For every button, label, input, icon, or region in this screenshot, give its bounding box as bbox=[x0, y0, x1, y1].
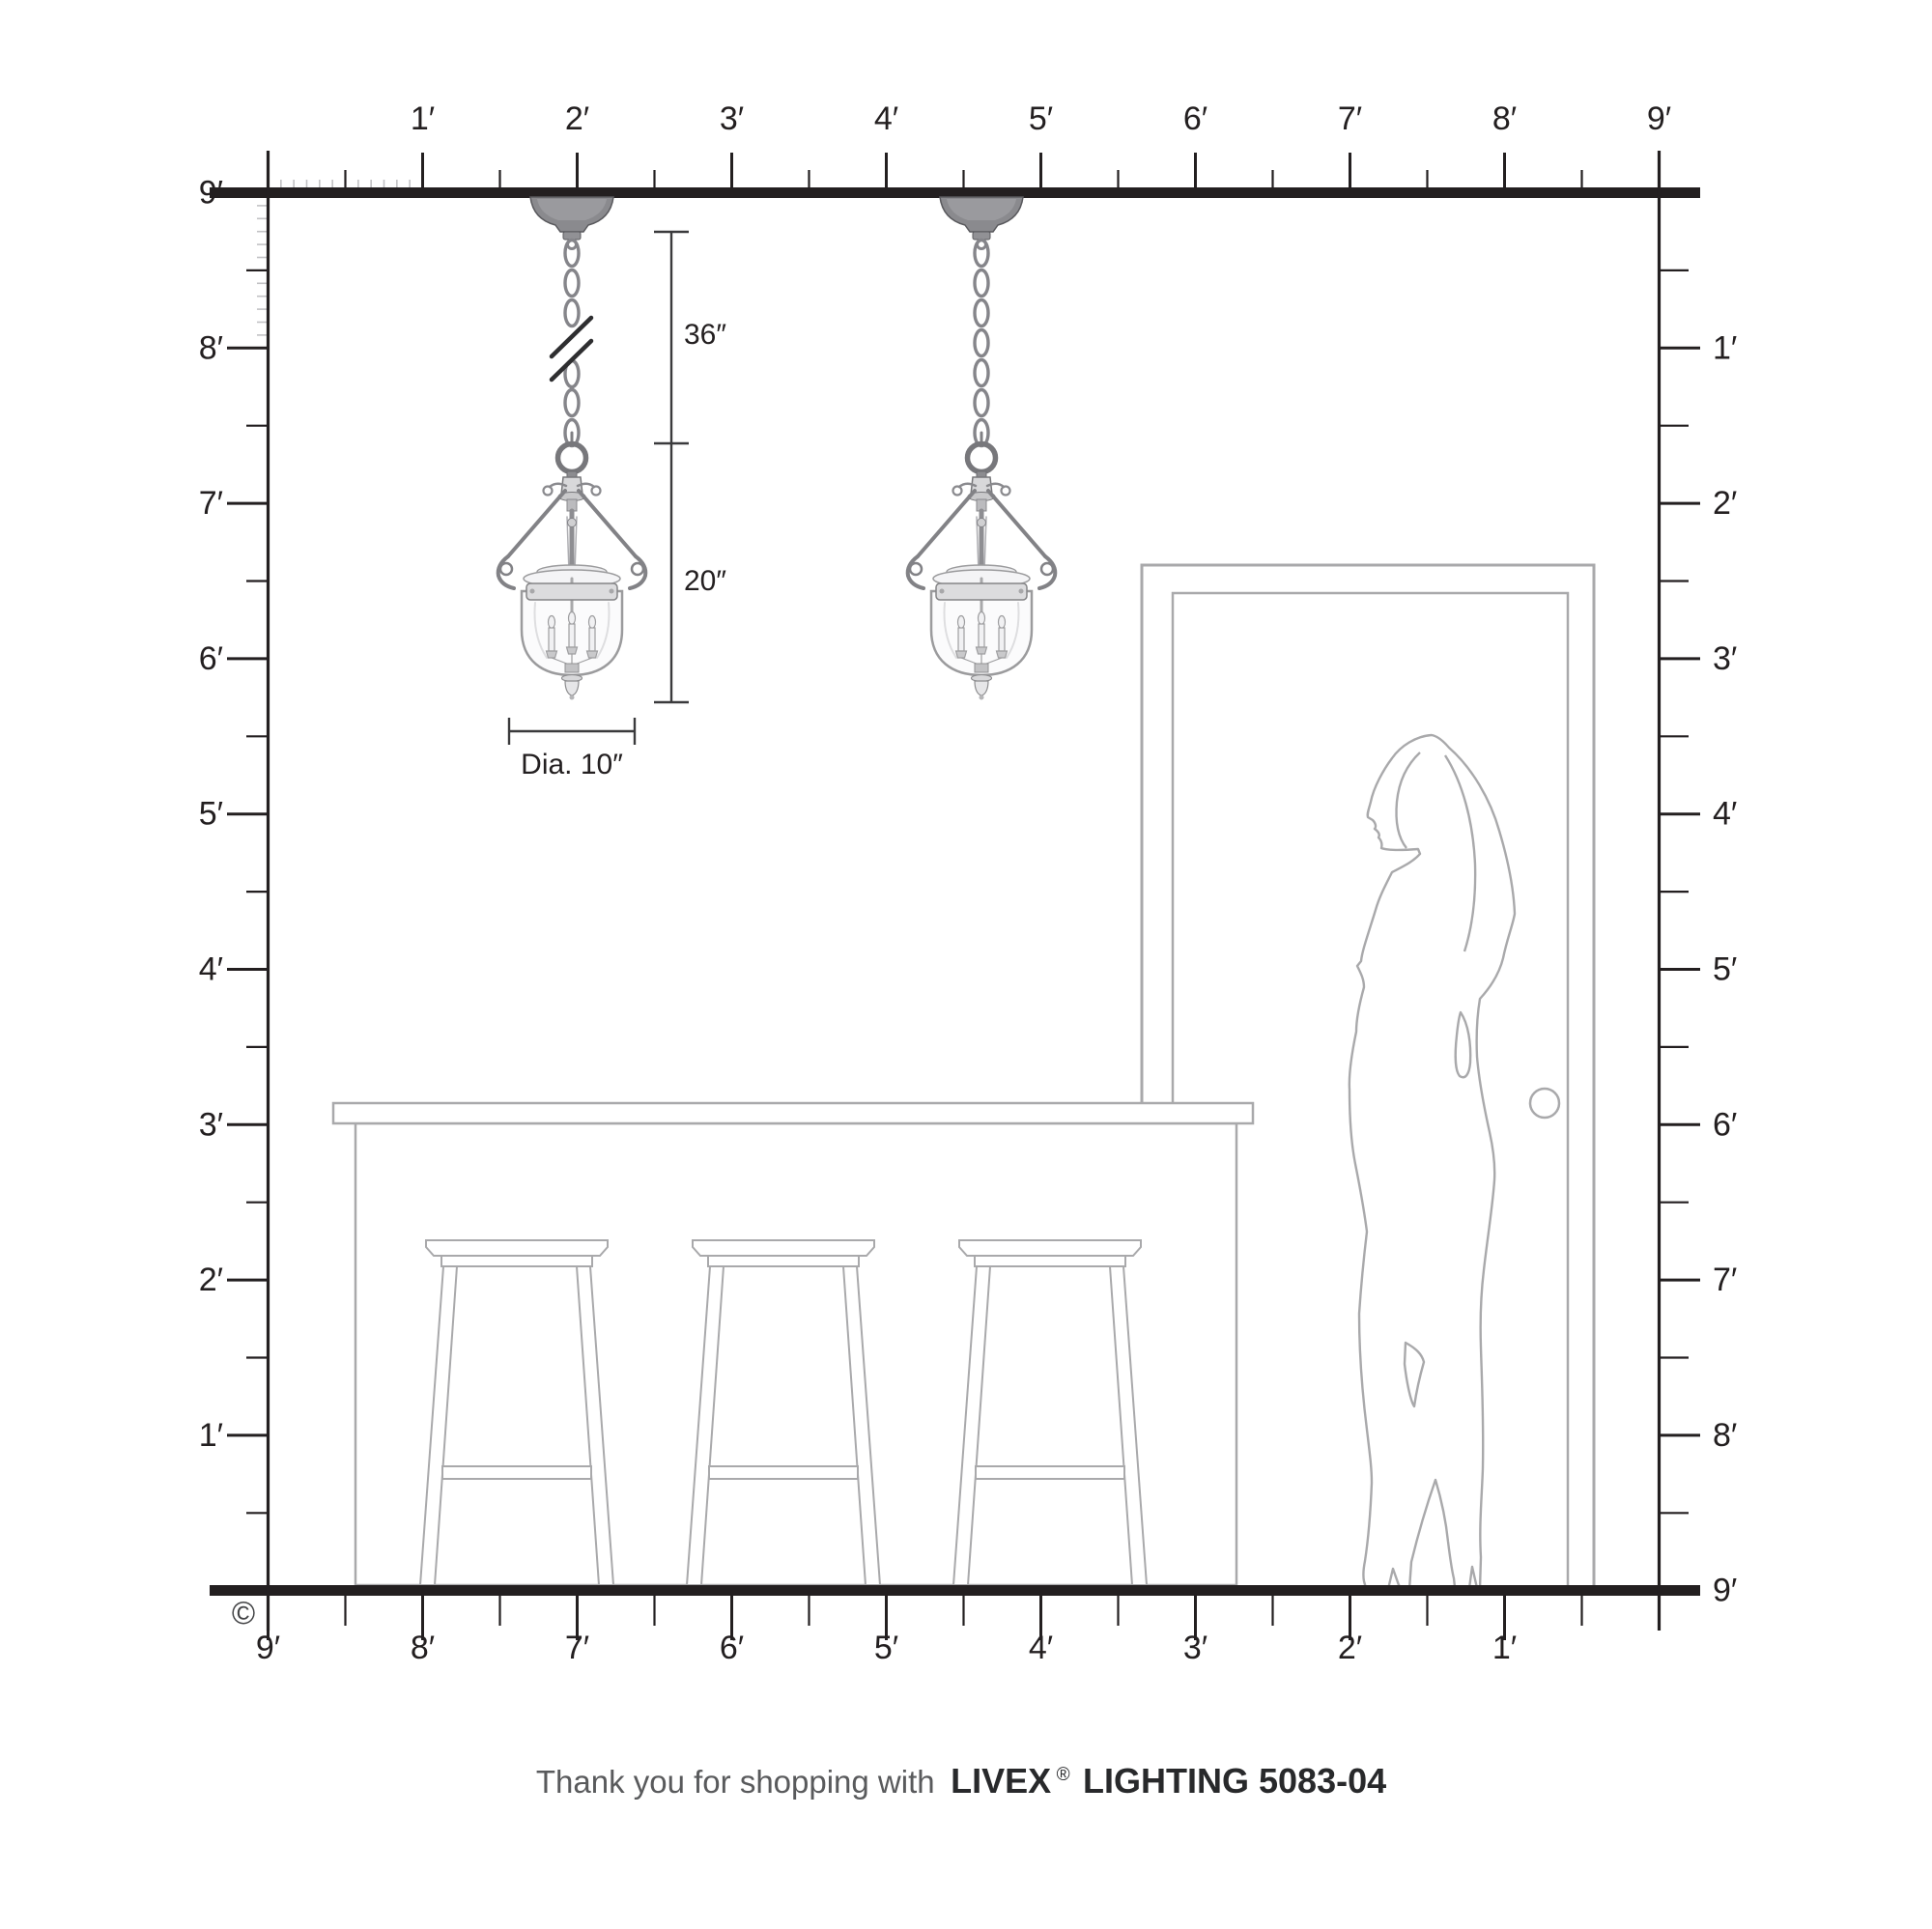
ruler-label: 7′ bbox=[565, 1630, 589, 1666]
ruler-label: 6′ bbox=[199, 640, 223, 677]
ruler-label: 5′ bbox=[874, 1630, 898, 1666]
door-knob bbox=[1530, 1089, 1559, 1118]
pendant-left bbox=[498, 197, 646, 700]
registered-trademark-icon: ® bbox=[1057, 1765, 1070, 1785]
ruler-label: 4′ bbox=[1713, 796, 1737, 833]
ruler-label: 5′ bbox=[1029, 100, 1053, 137]
ruler-label: 8′ bbox=[199, 329, 223, 366]
counter-body bbox=[355, 1123, 1236, 1585]
ruler-label: 2′ bbox=[565, 100, 589, 137]
ruler-label: 3′ bbox=[1713, 640, 1737, 677]
counter-top bbox=[333, 1103, 1253, 1123]
ruler-label: 8′ bbox=[1492, 100, 1517, 137]
ruler-label: 4′ bbox=[874, 100, 898, 137]
copyright-symbol: © bbox=[232, 1595, 255, 1631]
footer-brand: LIVEX bbox=[951, 1761, 1051, 1801]
ruler-label: 9′ bbox=[256, 1630, 280, 1666]
ruler-label: 4′ bbox=[1029, 1630, 1053, 1666]
footer-prefix: Thank you for shopping with bbox=[536, 1764, 935, 1800]
ruler-label: 1′ bbox=[1713, 329, 1737, 366]
ruler-label: 2′ bbox=[1713, 485, 1737, 522]
pendant-right bbox=[908, 197, 1056, 700]
ruler-label: 7′ bbox=[1713, 1262, 1737, 1298]
ruler-label: 8′ bbox=[1713, 1417, 1737, 1454]
ruler-label: 2′ bbox=[1338, 1630, 1362, 1666]
ruler-label: 6′ bbox=[1183, 100, 1207, 137]
ruler-label: 6′ bbox=[720, 1630, 744, 1666]
ruler-label: 9′ bbox=[1713, 1573, 1737, 1609]
ruler-label: 9′ bbox=[1647, 100, 1671, 137]
diagram-canvas: 1′2′3′4′5′6′7′8′9′9′8′7′6′5′4′3′2′1′1′2′… bbox=[0, 0, 1932, 1929]
pendant-chain bbox=[975, 241, 988, 446]
ruler-label: 6′ bbox=[1713, 1106, 1737, 1143]
ruler-label: 7′ bbox=[1338, 100, 1362, 137]
footer-text: Thank you for shopping with LIVEX ® LIGH… bbox=[536, 1761, 1386, 1801]
ruler-label: 5′ bbox=[199, 796, 223, 833]
fixture-height-label: 20″ bbox=[684, 565, 726, 597]
pendant-fixture bbox=[498, 433, 646, 700]
pendant-chain-broken bbox=[552, 241, 591, 446]
ruler-label: 3′ bbox=[720, 100, 744, 137]
ruler-label: 1′ bbox=[199, 1417, 223, 1454]
ruler-label: 9′ bbox=[199, 175, 223, 212]
ruler-label: 3′ bbox=[199, 1106, 223, 1143]
ruler-label: 4′ bbox=[199, 951, 223, 988]
product-scale-diagram: 1′2′3′4′5′6′7′8′9′9′8′7′6′5′4′3′2′1′1′2′… bbox=[0, 0, 1932, 1929]
chain-length-label: 36″ bbox=[684, 319, 726, 351]
ruler-label: 3′ bbox=[1183, 1630, 1207, 1666]
ruler-label: 2′ bbox=[199, 1262, 223, 1298]
ruler-label: 5′ bbox=[1713, 951, 1737, 988]
fixture-diameter-label: Dia. 10″ bbox=[521, 749, 623, 780]
footer-suffix: LIGHTING 5083-04 bbox=[1083, 1761, 1386, 1801]
ruler-label: 1′ bbox=[411, 100, 435, 137]
floor-line bbox=[210, 1585, 1700, 1596]
ruler-label: 1′ bbox=[1492, 1630, 1517, 1666]
ruler-label: 7′ bbox=[199, 485, 223, 522]
ruler-label: 8′ bbox=[411, 1630, 435, 1666]
pendant-fixture bbox=[908, 433, 1056, 700]
